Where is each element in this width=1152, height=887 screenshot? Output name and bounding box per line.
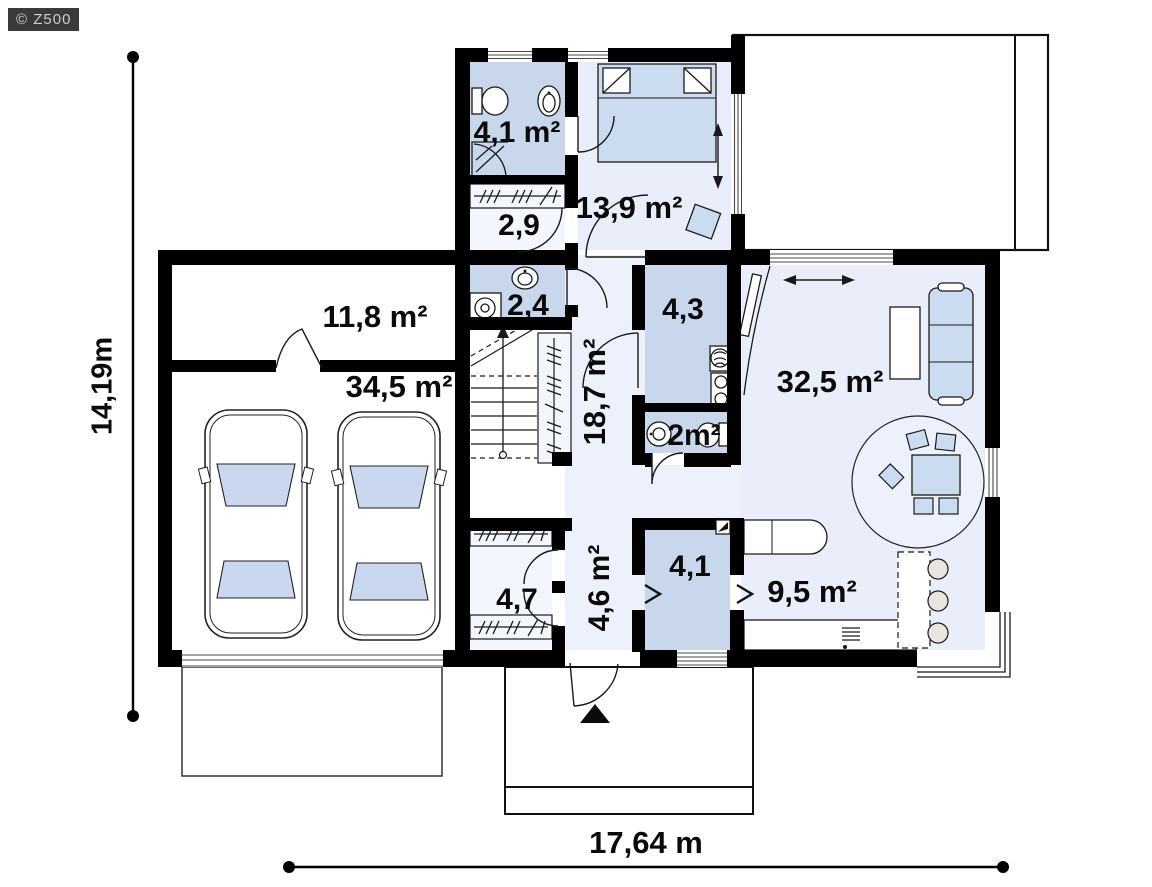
watermark-badge: © Z500 [8, 8, 79, 31]
hanging-rail-icon [470, 184, 565, 208]
room-label-laundry: 2,4 [507, 289, 549, 322]
bed-icon [598, 64, 716, 162]
sink-icon [512, 267, 538, 289]
car-icon [331, 412, 446, 640]
kitchen-counter-icon [744, 520, 827, 554]
room-label-living: 32,5 m² [777, 364, 884, 399]
porch-outline [505, 667, 753, 814]
room-label-bedroom: 13,9 m² [576, 190, 683, 225]
stool-icon [928, 591, 948, 611]
dimension-label-height: 14,19m [87, 337, 119, 435]
room-label-storage: 11,8 m² [322, 299, 427, 334]
room-label-wc: 2m² [667, 419, 720, 452]
room-label-bathroom: 4,1 m² [474, 116, 561, 149]
room-label-pantry: 4,1 [669, 550, 711, 583]
sofa-icon [929, 283, 973, 405]
room-label-kitchen: 9,5 m² [767, 574, 857, 609]
vent-icon [716, 520, 730, 534]
driveway-outline [182, 667, 442, 776]
room-label-hall: 18,7 m² [577, 339, 612, 446]
stool-icon [928, 559, 948, 579]
window [770, 250, 893, 265]
door-arc [276, 329, 322, 368]
hanging-rail-icon [470, 615, 552, 639]
window [985, 448, 1000, 497]
room-label-closet-lower: 4,7 [496, 583, 538, 616]
floor-plan-svg: 4,1 m² 2,9 13,9 m² 2,4 11,8 m² 34,5 m² 4… [0, 0, 1152, 887]
window [568, 48, 608, 62]
bar-counter-icon [898, 552, 930, 648]
stairs-icon [471, 318, 537, 459]
dimension-height: 14,19m [87, 51, 139, 722]
room-label-wardrobe-upper: 2,9 [498, 209, 540, 242]
window [488, 48, 532, 62]
coffee-table-icon [890, 307, 920, 379]
room-label-utility: 4,3 [662, 293, 704, 326]
kitchen-worktop-icon [744, 620, 916, 650]
stool-icon [928, 623, 948, 643]
car-icon [198, 410, 313, 638]
hanging-rail-icon [538, 333, 571, 463]
room-label-entry: 4,6 m² [583, 545, 616, 632]
toilet-icon [472, 87, 508, 115]
window [677, 650, 727, 667]
dimension-label-width: 17,64 m [589, 825, 703, 860]
sink-icon [538, 86, 560, 116]
garage-door [182, 650, 443, 667]
dimension-width: 17,64 m [283, 825, 1009, 873]
window [731, 94, 745, 214]
terrace-outline [733, 35, 1048, 250]
floor-plan-page: © Z500 [0, 0, 1152, 887]
room-label-garage: 34,5 m² [346, 369, 453, 404]
